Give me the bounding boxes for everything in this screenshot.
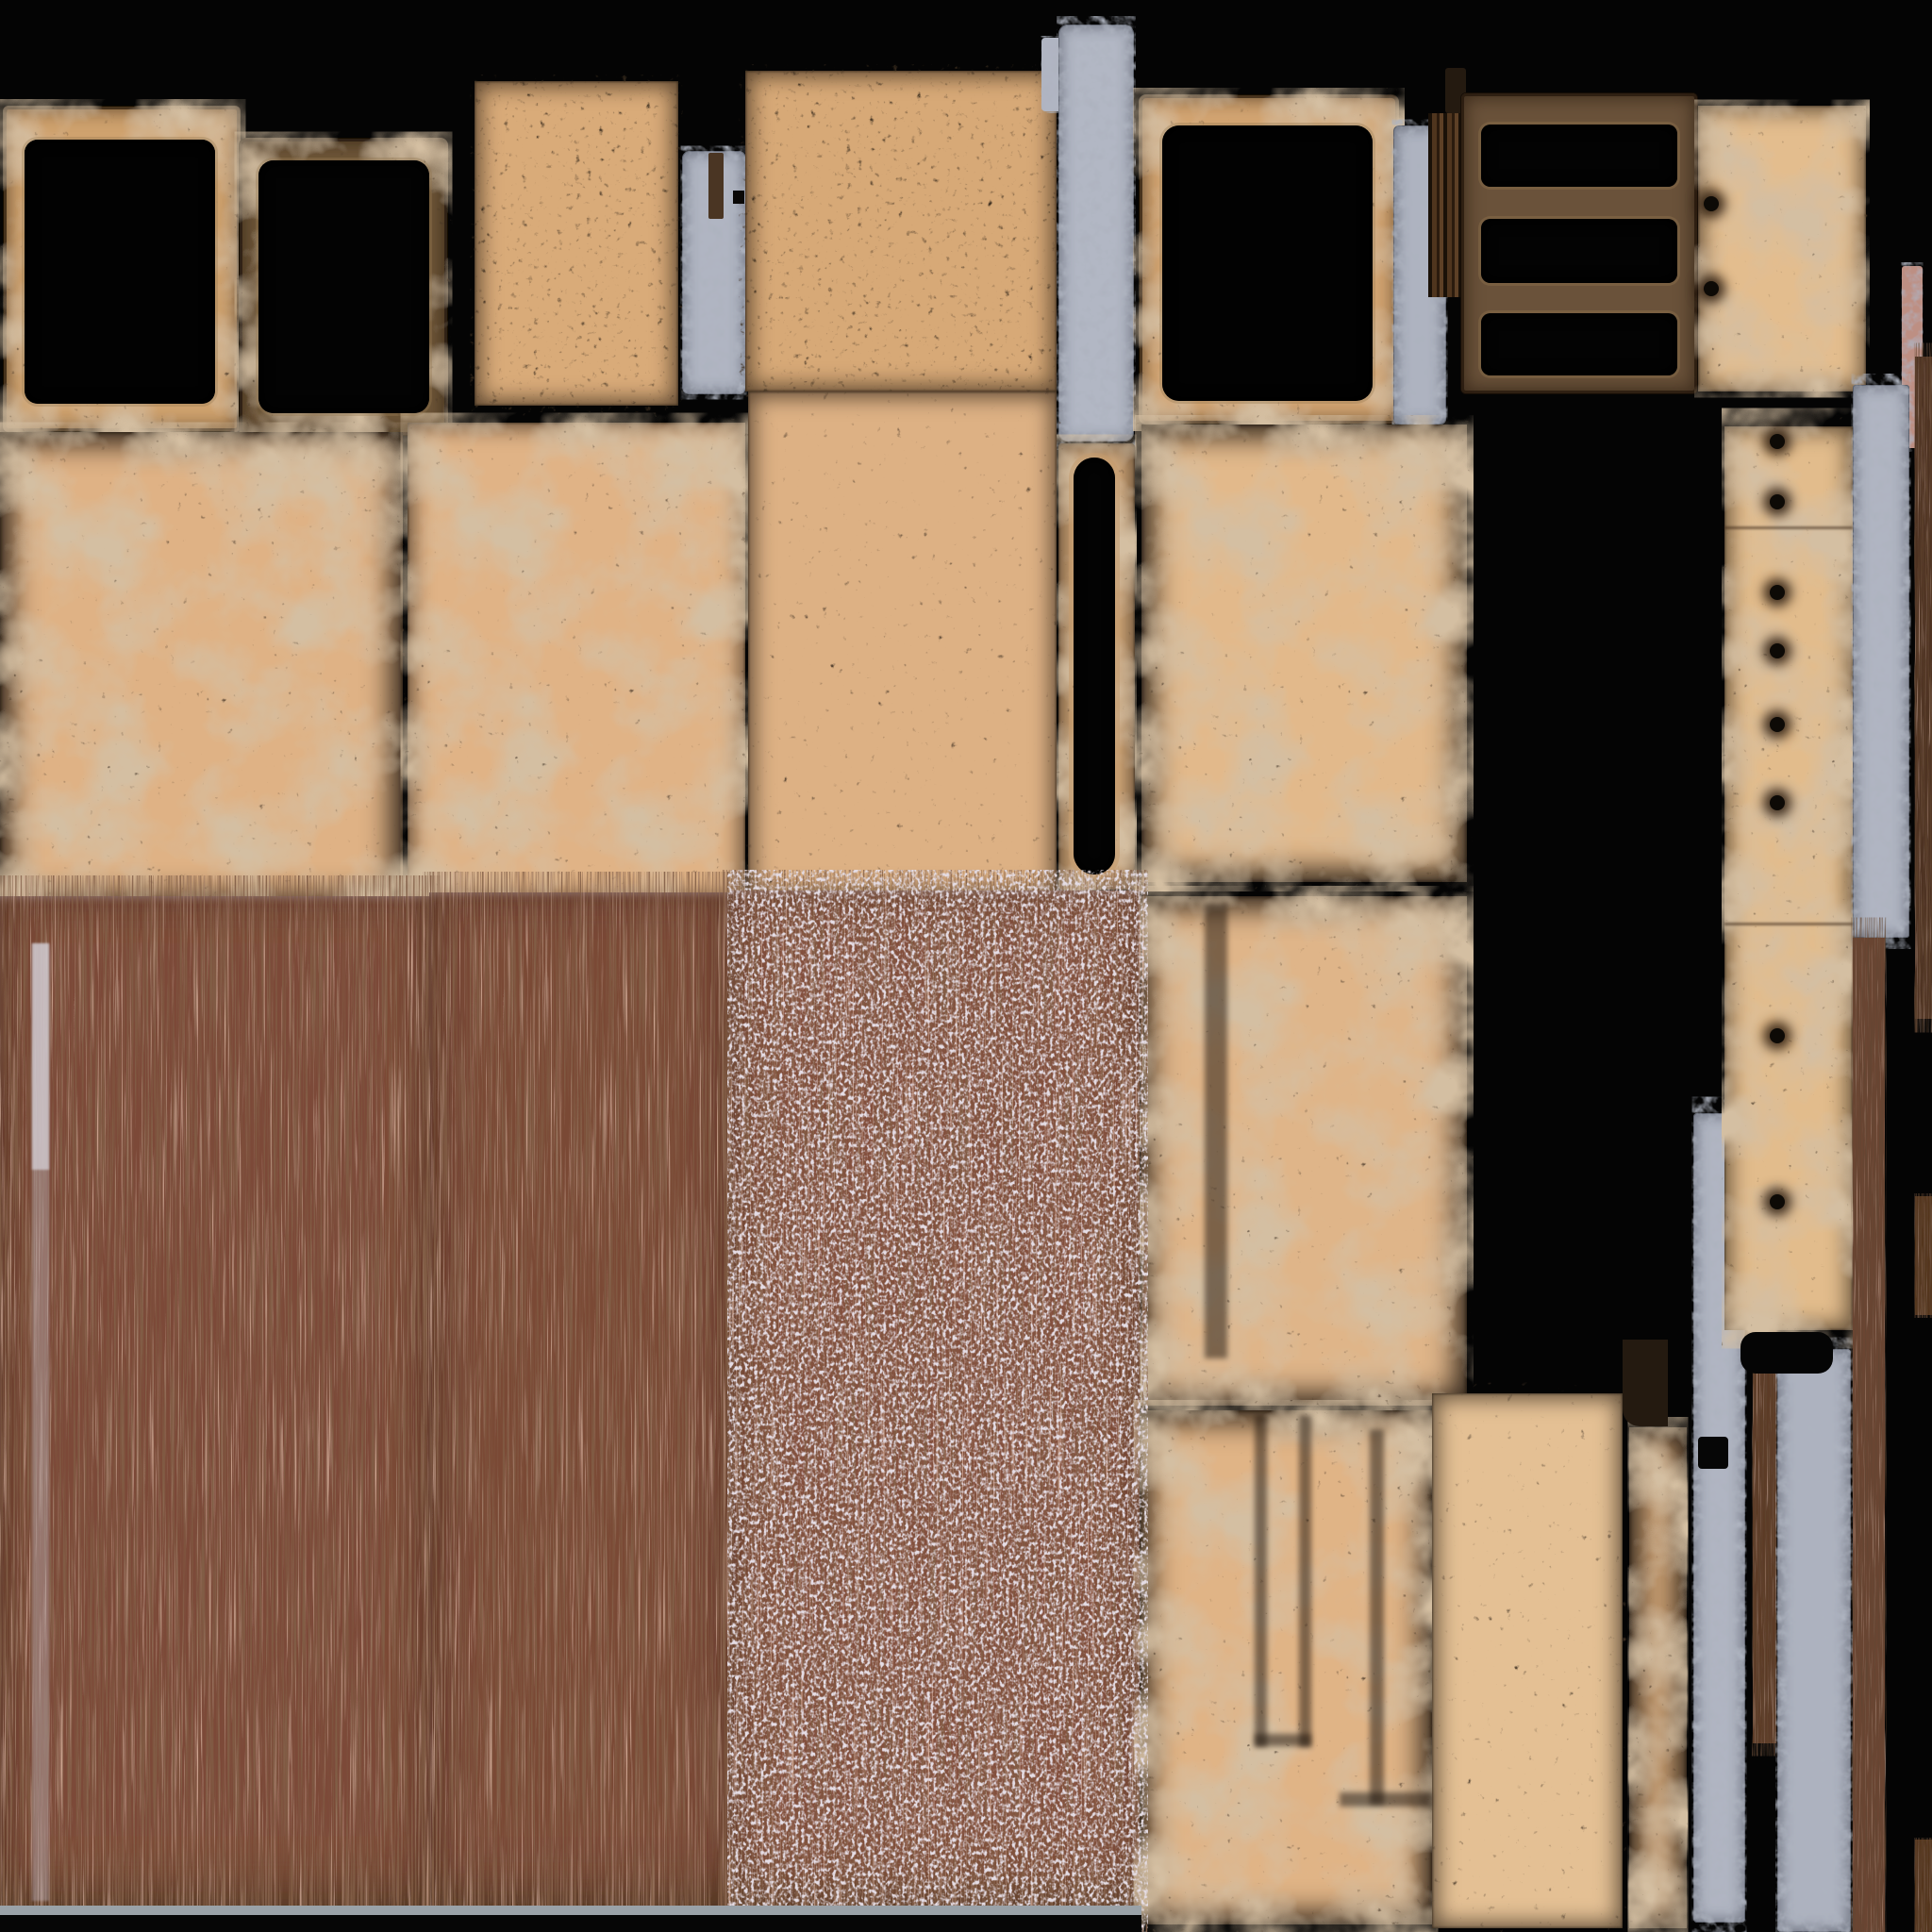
- screw-mark: [1770, 1194, 1785, 1209]
- wood-floor-plank-left: [0, 896, 431, 1926]
- picture-frame-tan-opening: [1162, 125, 1373, 401]
- plaster-panel-right-lower: [1140, 896, 1467, 1406]
- picture-frame-dark-opening: [258, 160, 429, 413]
- screw-mark: [1770, 1028, 1785, 1043]
- paint-streak-bright: [32, 943, 49, 1170]
- screw-mark: [1704, 281, 1719, 296]
- wood-edge-strip: [1915, 357, 1932, 1019]
- screw-mark: [1770, 494, 1785, 509]
- door-inset-line-bottom: [1255, 1734, 1311, 1746]
- metal-column-tall: [1058, 25, 1134, 441]
- plaster-panel-right-upper: [1141, 425, 1467, 882]
- wood-floor-plank-mid: [429, 892, 733, 1926]
- plaster-panel-bottom-mid: [1432, 1393, 1623, 1928]
- floor-metal-band: [0, 1906, 1141, 1915]
- wood-plank-right: [1853, 938, 1885, 1932]
- screw-column-seam: [1724, 923, 1853, 925]
- door-inset-line: [1370, 1429, 1384, 1805]
- cabinet-side-panel: [1698, 106, 1866, 391]
- cabinet-opening-middle: [1481, 219, 1677, 283]
- screw-mark: [1770, 434, 1785, 449]
- picture-frame-light-opening: [25, 140, 215, 404]
- texture-atlas-canvas: [0, 0, 1932, 1932]
- screw-mark: [1770, 643, 1785, 658]
- plaster-column-bottom: [1629, 1427, 1687, 1928]
- plaster-panel-mid: [748, 391, 1057, 896]
- cabinet-opening-bottom: [1481, 313, 1677, 375]
- plaster-panel-bottom-right-large: [1140, 1410, 1432, 1924]
- floor-black-bar: [0, 1915, 1141, 1932]
- plaster-panel-speckled-a: [475, 81, 678, 406]
- metal-strip-small-dot: [733, 191, 744, 204]
- wood-bit: [1915, 1196, 1932, 1315]
- door-inset-line: [1299, 1415, 1311, 1747]
- black-pill: [1740, 1332, 1833, 1374]
- metal-column-right: [1853, 385, 1909, 938]
- screw-mark: [1770, 795, 1785, 810]
- metal-strip-small-bar: [708, 153, 724, 219]
- metal-notch: [1698, 1437, 1728, 1469]
- screw-mark: [1704, 196, 1719, 211]
- plaster-panel-mid-left: [408, 423, 745, 901]
- screw-column: [1724, 426, 1853, 1330]
- plaster-panel-large-left: [0, 432, 403, 908]
- wood-trim-strips: [1428, 113, 1460, 297]
- scratch-overlay: [736, 891, 1140, 1926]
- screw-mark: [1770, 717, 1785, 732]
- screw-column-seam: [1724, 526, 1853, 529]
- screw-mark: [1770, 585, 1785, 600]
- dark-wood-block: [1623, 1340, 1668, 1426]
- metal-column-bottom-b: [1777, 1349, 1851, 1932]
- grunge-stripe: [1205, 904, 1227, 1358]
- plaster-panel-speckled-b: [745, 71, 1057, 391]
- door-inset-line-bottom: [1340, 1792, 1431, 1807]
- slot-opening: [1074, 458, 1115, 874]
- cabinet-opening-top: [1481, 125, 1677, 187]
- door-inset-line: [1255, 1415, 1267, 1747]
- wood-bit: [1915, 1840, 1932, 1932]
